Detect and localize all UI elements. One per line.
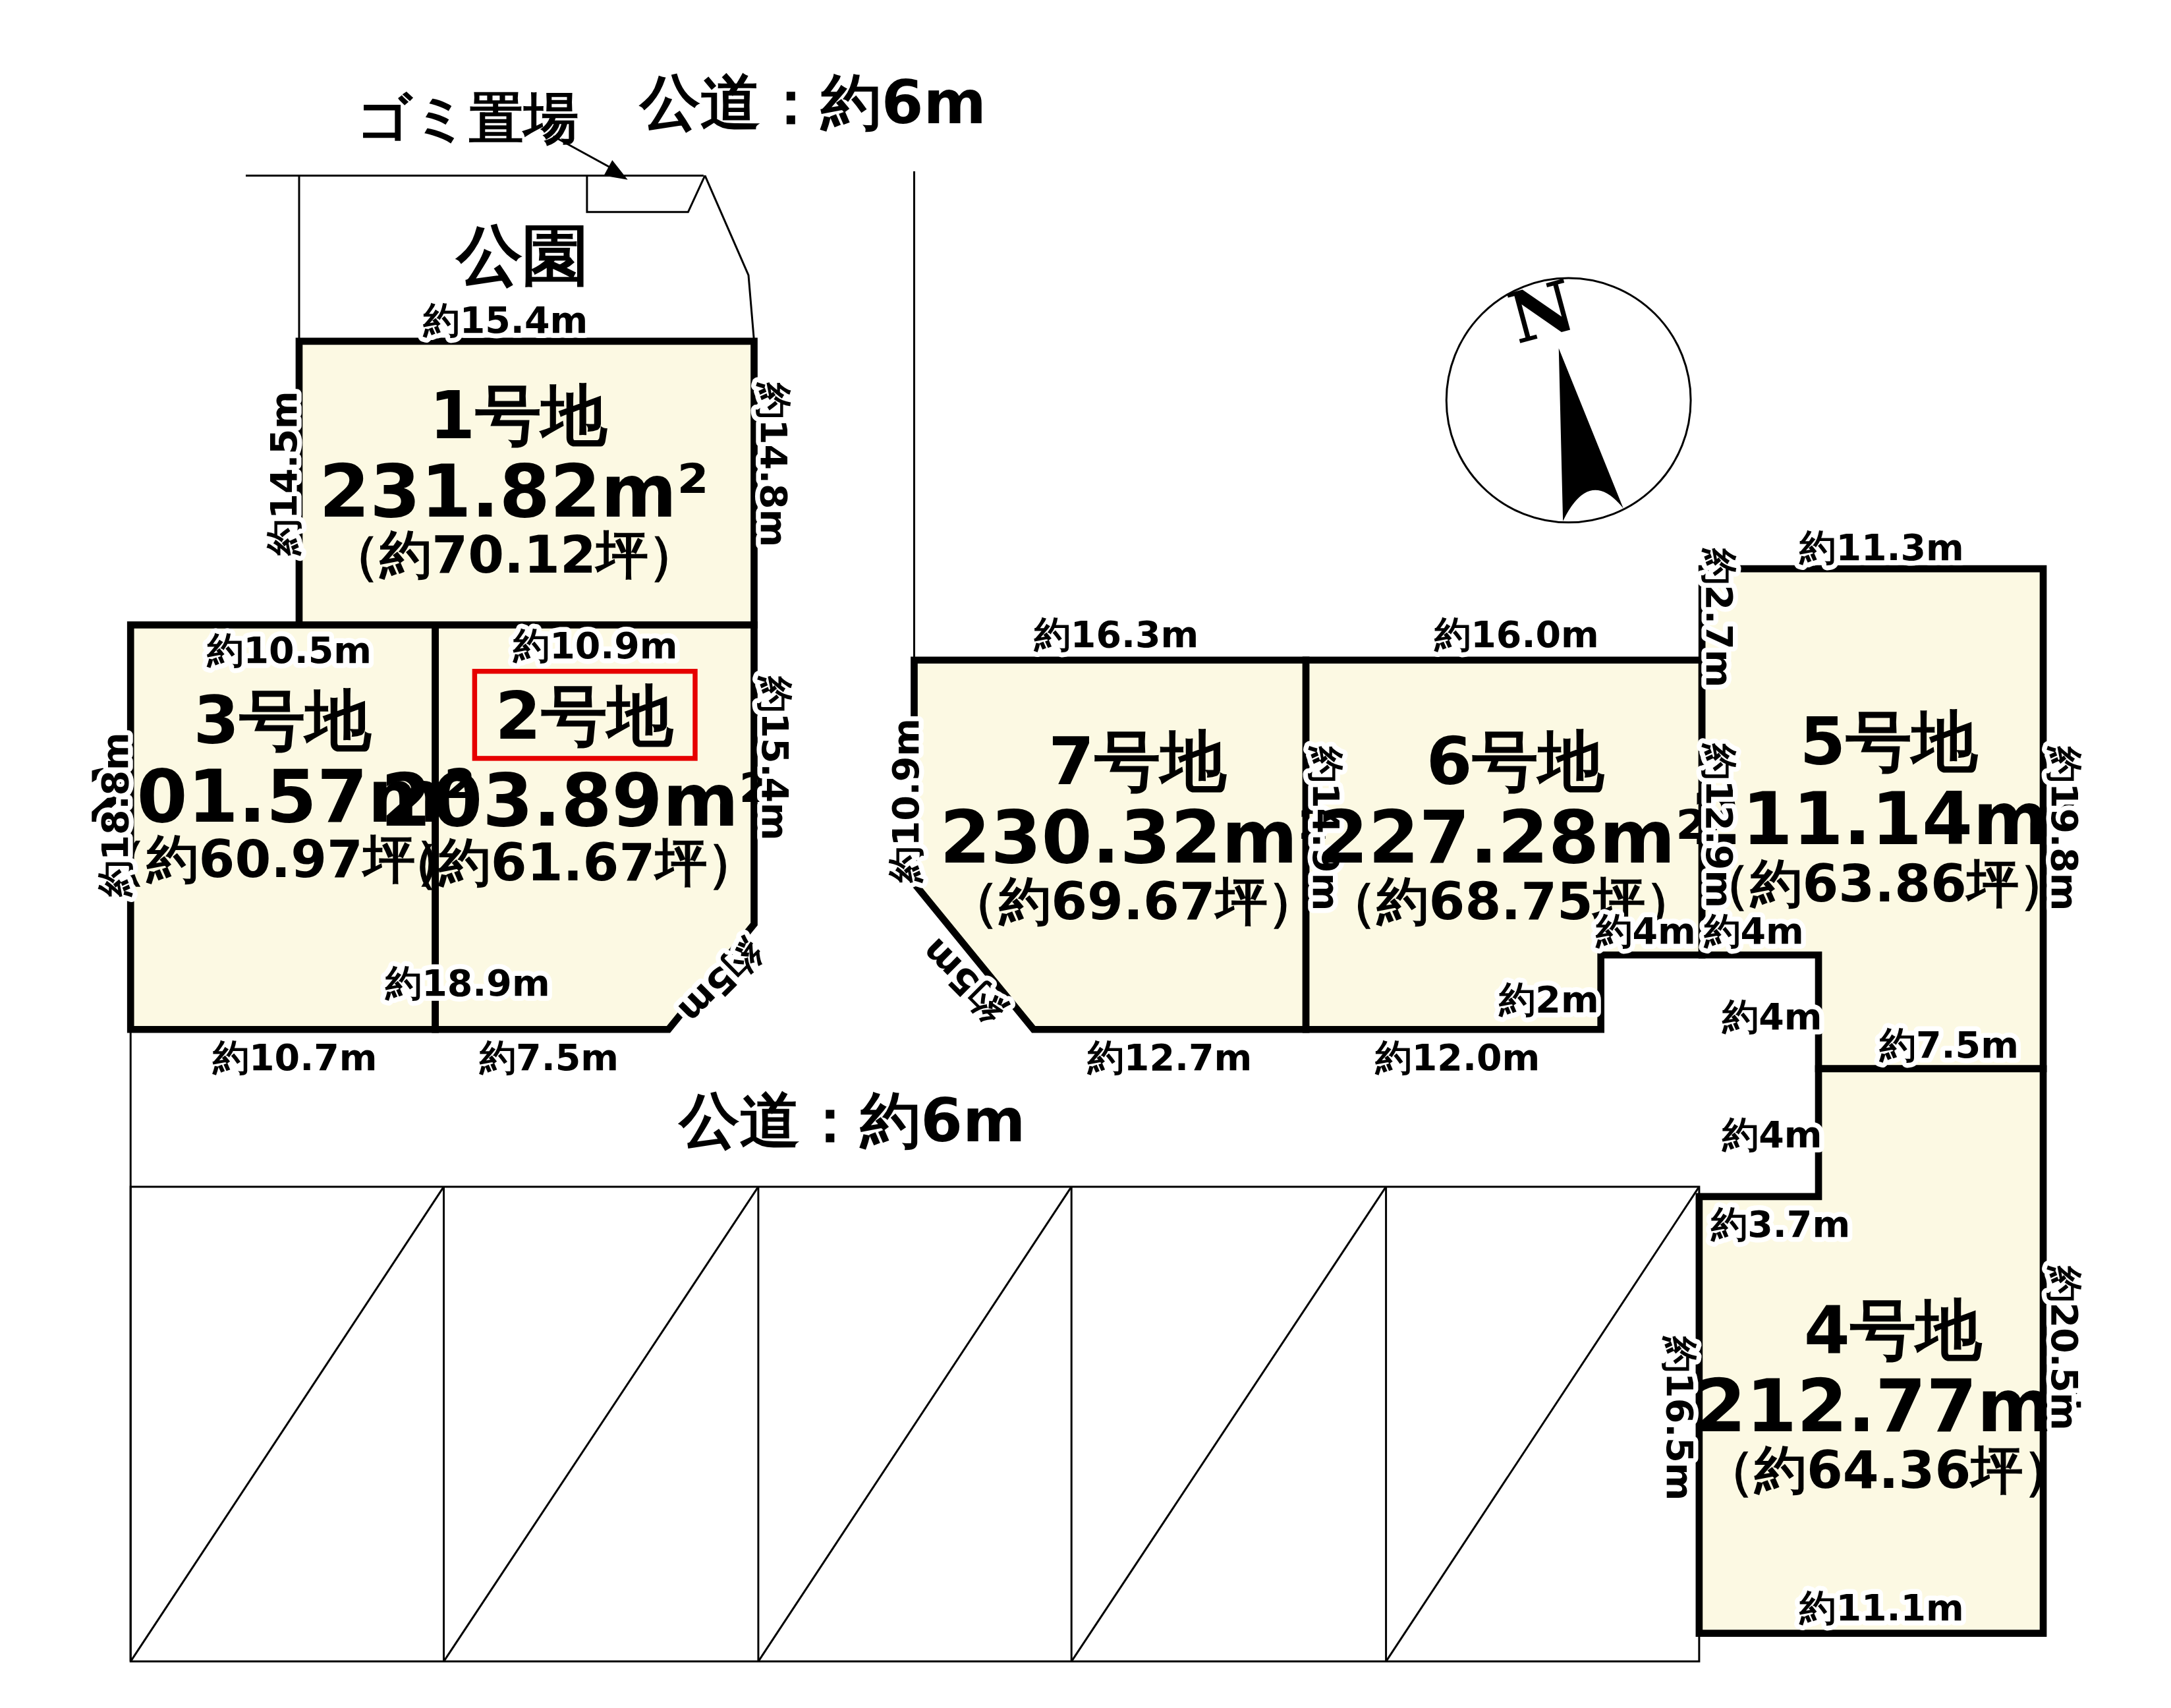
park-label: 公園 [455,217,588,294]
lot7-dim-left: 約10.9m [885,718,927,884]
parking-diagonal-5 [1386,1187,1699,1661]
lot6-dim-step-top: 約4m [1595,910,1696,952]
lot3-dim-left: 約18.8m [94,732,136,897]
lot5-dim-pole-side: 約4m [1722,996,1822,1038]
lot5-name: 5号地 [1800,703,1979,780]
lot4-dim-step-top: 約3.7m [1710,1203,1850,1245]
lot3-dim-bottom: 約10.7m [212,1037,378,1079]
lot7-dim-bottom: 約12.7m [1086,1037,1252,1079]
lot5-dim-left-upper: 約2.7m [1698,548,1740,687]
north-needle-icon [1559,349,1623,521]
lot6-name: 6号地 [1426,723,1605,800]
lot4-name: 4号地 [1804,1292,1983,1369]
lot2-dim-bottom: 約7.5m [479,1037,619,1079]
lot5-tsubo: （約63.86坪） [1699,853,2071,914]
lot6-area: 227.28m² [1318,795,1708,880]
lot7-area: 230.32m² [940,795,1330,880]
lot4-area: 212.77m² [1695,1363,2085,1448]
lot4-dim-pole-side: 約4m [1722,1114,1822,1156]
lot1-tsubo: （約70.12坪） [328,525,700,585]
site-plan-svg: N ゴミ置場 公道：約6m 公園 公道：約6m 1号地 231.82m² （約7… [0,0,2171,1708]
lot6-dim-step-side: 約2m [1498,979,1599,1021]
lot2-dim-top: 約10.9m [513,625,678,667]
park-right-diagonal-boundary [705,175,754,341]
lot-layout-diagram: N ゴミ置場 公道：約6m 公園 公道：約6m 1号地 231.82m² （約7… [0,0,2171,1708]
lot6-dim-top: 約16.0m [1434,613,1599,656]
lot3-dim-top: 約10.5m [206,629,372,671]
lot5-area: 211.14m² [1691,776,2081,861]
garbage-place-notch [587,175,705,212]
parking-diagonal-2 [443,1187,758,1661]
lot2-area: 203.89m² [381,758,771,843]
lot5-dim-top: 約11.3m [1799,527,1964,569]
lot3-name: 3号地 [193,682,372,759]
lot7-tsubo: （約69.67坪） [947,871,1320,932]
lot7-dim-top: 約16.3m [1033,613,1198,656]
lot1-dim-left: 約14.5m [263,391,305,556]
lot5-dim-bottom: 約7.5m [1879,1024,2019,1066]
parking-diagonal-3 [758,1187,1071,1661]
garbage-place-label: ゴミ置場 [357,86,578,150]
lot1-name: 1号地 [429,377,607,454]
lot1-dim-top: 約15.4m [422,299,588,341]
lot7-name: 7号地 [1048,723,1227,800]
lot2-name: 2号地 [495,677,674,754]
parking-diagonal-4 [1071,1187,1386,1661]
lot5-dim-pole-top: 約4m [1703,910,1804,952]
lot5-dim-left: 約12.9m [1698,743,1740,908]
lot4-dim-right: 約20.5m [2043,1265,2085,1431]
lot2-tsubo: （約61.67坪） [387,832,759,893]
lot4-dim-left: 約16.5m [1658,1336,1701,1501]
lot4-tsubo: （約64.36坪） [1703,1440,2075,1500]
lot6-dim-bottom: 約12.0m [1374,1037,1540,1079]
road-top-label: 公道：約6m [638,67,986,138]
lot1-area: 231.82m² [319,449,709,534]
lot2-dim-right: 約15.4m [754,675,796,841]
lot5-dim-right: 約19.8m [2043,746,2085,911]
lot1-dim-right: 約14.8m [752,382,795,548]
lot4-dim-bottom: 約11.1m [1799,1587,1964,1629]
garbage-arrow-head [604,160,627,180]
lot2-dim-divider: 約18.9m [385,962,550,1004]
road-middle-label: 公道：約6m [678,1085,1026,1156]
parking-diagonal-1 [130,1187,443,1661]
